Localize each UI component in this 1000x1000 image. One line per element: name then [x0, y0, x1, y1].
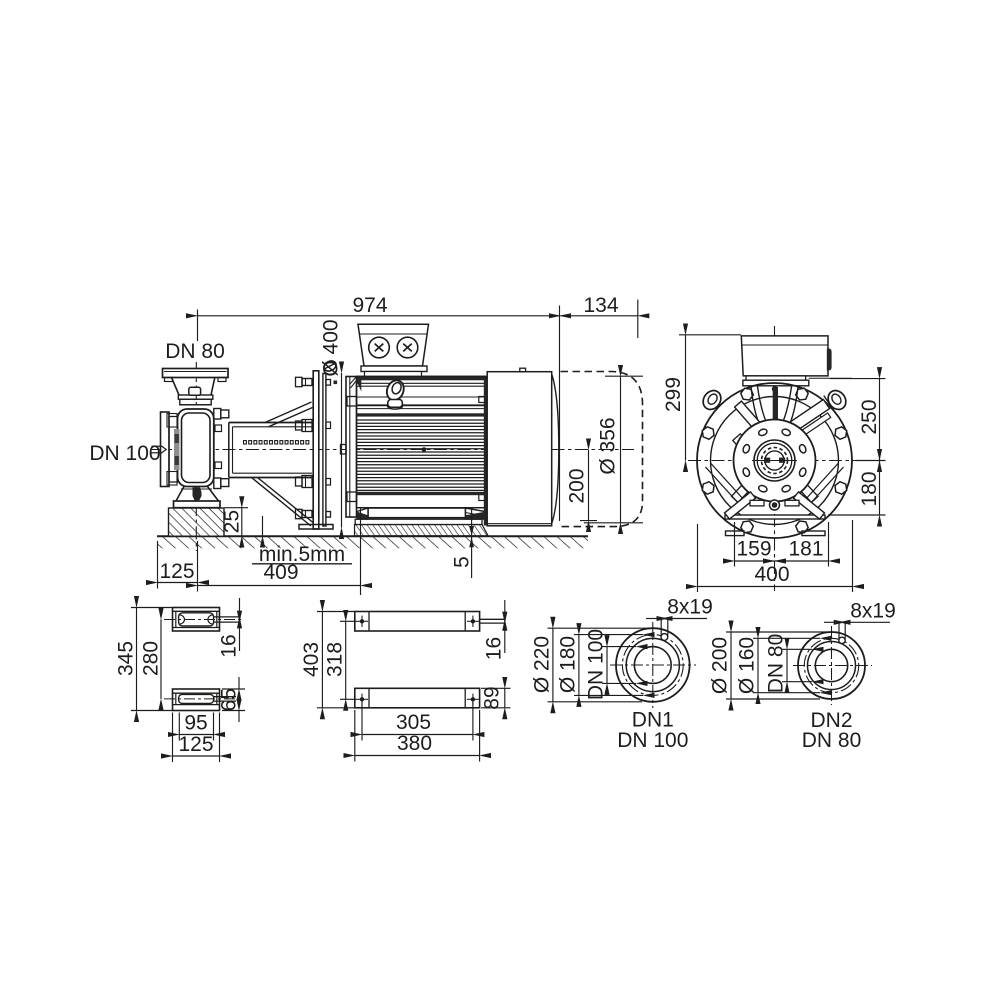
svg-text:16: 16 — [483, 637, 506, 660]
svg-text:DN 80: DN 80 — [802, 729, 862, 752]
svg-text:403: 403 — [300, 642, 323, 677]
svg-text:16: 16 — [218, 634, 241, 657]
svg-text:159: 159 — [736, 538, 771, 561]
svg-text:318: 318 — [324, 642, 347, 677]
svg-text:95: 95 — [184, 712, 207, 735]
svg-text:250: 250 — [858, 399, 881, 434]
svg-text:400: 400 — [754, 563, 789, 586]
svg-text:Ø 356: Ø 356 — [597, 417, 620, 474]
svg-text:409: 409 — [263, 561, 298, 584]
svg-text:345: 345 — [115, 641, 138, 676]
svg-text:DN 100: DN 100 — [617, 729, 688, 752]
svg-text:DN 100: DN 100 — [585, 629, 608, 700]
svg-text:8x19: 8x19 — [850, 600, 896, 623]
svg-text:134: 134 — [583, 294, 618, 317]
svg-text:Ø 400: Ø 400 — [320, 319, 343, 376]
svg-text:DN 80: DN 80 — [765, 634, 788, 694]
svg-text:Ø 160: Ø 160 — [736, 637, 759, 694]
svg-text:DN 100: DN 100 — [89, 442, 160, 465]
svg-text:89: 89 — [481, 686, 504, 709]
svg-text:280: 280 — [140, 641, 163, 676]
svg-text:200: 200 — [566, 468, 589, 503]
svg-text:Ø 220: Ø 220 — [531, 636, 554, 693]
svg-text:Ø 200: Ø 200 — [709, 637, 732, 694]
svg-text:299: 299 — [662, 377, 685, 412]
svg-text:Ø 180: Ø 180 — [557, 636, 580, 693]
svg-text:125: 125 — [159, 560, 194, 583]
svg-text:125: 125 — [178, 733, 213, 756]
svg-text:5: 5 — [451, 556, 474, 568]
svg-text:180: 180 — [858, 471, 881, 506]
svg-text:65: 65 — [218, 688, 241, 711]
svg-text:305: 305 — [396, 711, 431, 734]
svg-text:380: 380 — [397, 732, 432, 755]
svg-text:974: 974 — [352, 294, 387, 317]
svg-text:181: 181 — [788, 538, 823, 561]
svg-text:25: 25 — [221, 510, 244, 533]
svg-text:DN 80: DN 80 — [165, 340, 225, 363]
svg-text:8x19: 8x19 — [667, 596, 713, 619]
